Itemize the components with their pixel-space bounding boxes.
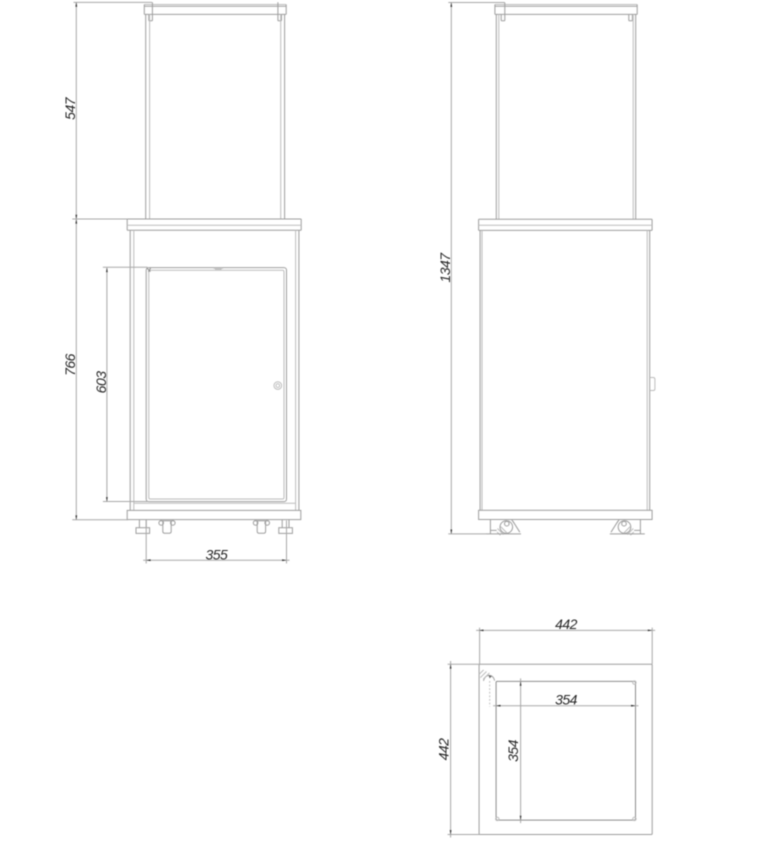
svg-text:354: 354 bbox=[555, 691, 578, 707]
svg-text:603: 603 bbox=[93, 371, 109, 394]
svg-text:766: 766 bbox=[62, 353, 78, 376]
svg-text:442: 442 bbox=[555, 616, 578, 632]
svg-text:547: 547 bbox=[62, 96, 78, 120]
svg-text:442: 442 bbox=[436, 738, 452, 761]
svg-text:1347: 1347 bbox=[437, 252, 453, 283]
svg-text:354: 354 bbox=[505, 739, 521, 762]
svg-text:355: 355 bbox=[205, 546, 228, 562]
